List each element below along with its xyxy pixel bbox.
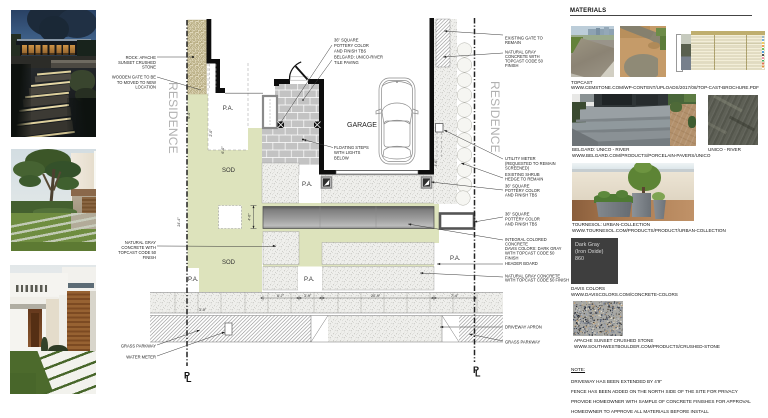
svg-text:P.A.: P.A.	[450, 256, 461, 262]
svg-text:2'-0": 2'-0"	[209, 129, 213, 137]
svg-text:AND FINISH TBS: AND FINISH TBS	[505, 221, 537, 226]
svg-text:GARAGE: GARAGE	[347, 122, 377, 129]
svg-text:FINISH: FINISH	[143, 255, 156, 260]
svg-text:3'-9": 3'-9"	[304, 294, 312, 298]
svg-text:SCREENED): SCREENED)	[505, 166, 530, 171]
svg-text:P.A.: P.A.	[223, 106, 234, 112]
svg-text:WOODEN GATE TO BE: WOODEN GATE TO BE	[112, 75, 156, 80]
svg-text:RESIDENCE: RESIDENCE	[166, 82, 180, 154]
svg-text:GRASS PARKWAY: GRASS PARKWAY	[121, 344, 156, 349]
svg-text:DRIVEWAY APRON: DRIVEWAY APRON	[505, 325, 542, 330]
svg-text:WITH TOPCAST CODE 50 FINISH: WITH TOPCAST CODE 50 FINISH	[505, 278, 569, 283]
svg-text:POTTERY COLOR: POTTERY COLOR	[334, 43, 369, 48]
svg-text:L: L	[186, 374, 192, 384]
svg-text:AND FINISH TBS: AND FINISH TBS	[334, 48, 366, 53]
svg-text:36" SQUARE: 36" SQUARE	[334, 38, 359, 43]
svg-text:LOCATION: LOCATION	[135, 84, 156, 89]
svg-text:BELOW: BELOW	[334, 155, 349, 160]
svg-text:20'-9": 20'-9"	[371, 294, 381, 298]
svg-text:FLOATING STEPS: FLOATING STEPS	[334, 145, 369, 150]
svg-text:L: L	[475, 369, 481, 379]
svg-text:FINISH: FINISH	[505, 255, 518, 260]
svg-text:BELGARD: UNICO-RIVER: BELGARD: UNICO-RIVER	[334, 55, 383, 60]
svg-text:SOD: SOD	[222, 168, 236, 174]
svg-text:P.A.: P.A.	[302, 182, 313, 188]
svg-text:WATER METER: WATER METER	[126, 355, 156, 360]
svg-text:SOD: SOD	[222, 260, 236, 266]
svg-text:REMAIN: REMAIN	[505, 40, 521, 45]
svg-text:P.A.: P.A.	[188, 277, 199, 283]
svg-text:P.A.: P.A.	[304, 277, 315, 283]
svg-text:ROCK: APACHE: ROCK: APACHE	[126, 55, 157, 60]
svg-text:RESIDENCE: RESIDENCE	[488, 81, 502, 153]
svg-text:GRASS PARKWAY: GRASS PARKWAY	[505, 340, 540, 345]
svg-text:HEDGE TO REMAIN: HEDGE TO REMAIN	[505, 177, 543, 182]
svg-text:7'-4": 7'-4"	[451, 294, 459, 298]
svg-text:TILE PAVING: TILE PAVING	[334, 60, 359, 65]
svg-text:HEADER BOARD: HEADER BOARD	[505, 261, 538, 266]
svg-text:6'-7": 6'-7"	[277, 294, 285, 298]
svg-text:4'-0": 4'-0"	[434, 159, 438, 167]
svg-text:AND FINISH TBS: AND FINISH TBS	[505, 193, 537, 198]
svg-text:24'-4": 24'-4"	[177, 217, 181, 227]
svg-text:FINISH: FINISH	[505, 63, 518, 68]
svg-text:STONE: STONE	[142, 65, 156, 70]
svg-text:WITH LIGHTS: WITH LIGHTS	[334, 150, 361, 155]
svg-text:4'-0": 4'-0"	[248, 213, 252, 221]
svg-text:6'-0": 6'-0"	[187, 111, 191, 119]
svg-text:3'-0": 3'-0"	[199, 308, 207, 312]
svg-text:6'-0": 6'-0"	[221, 146, 225, 154]
